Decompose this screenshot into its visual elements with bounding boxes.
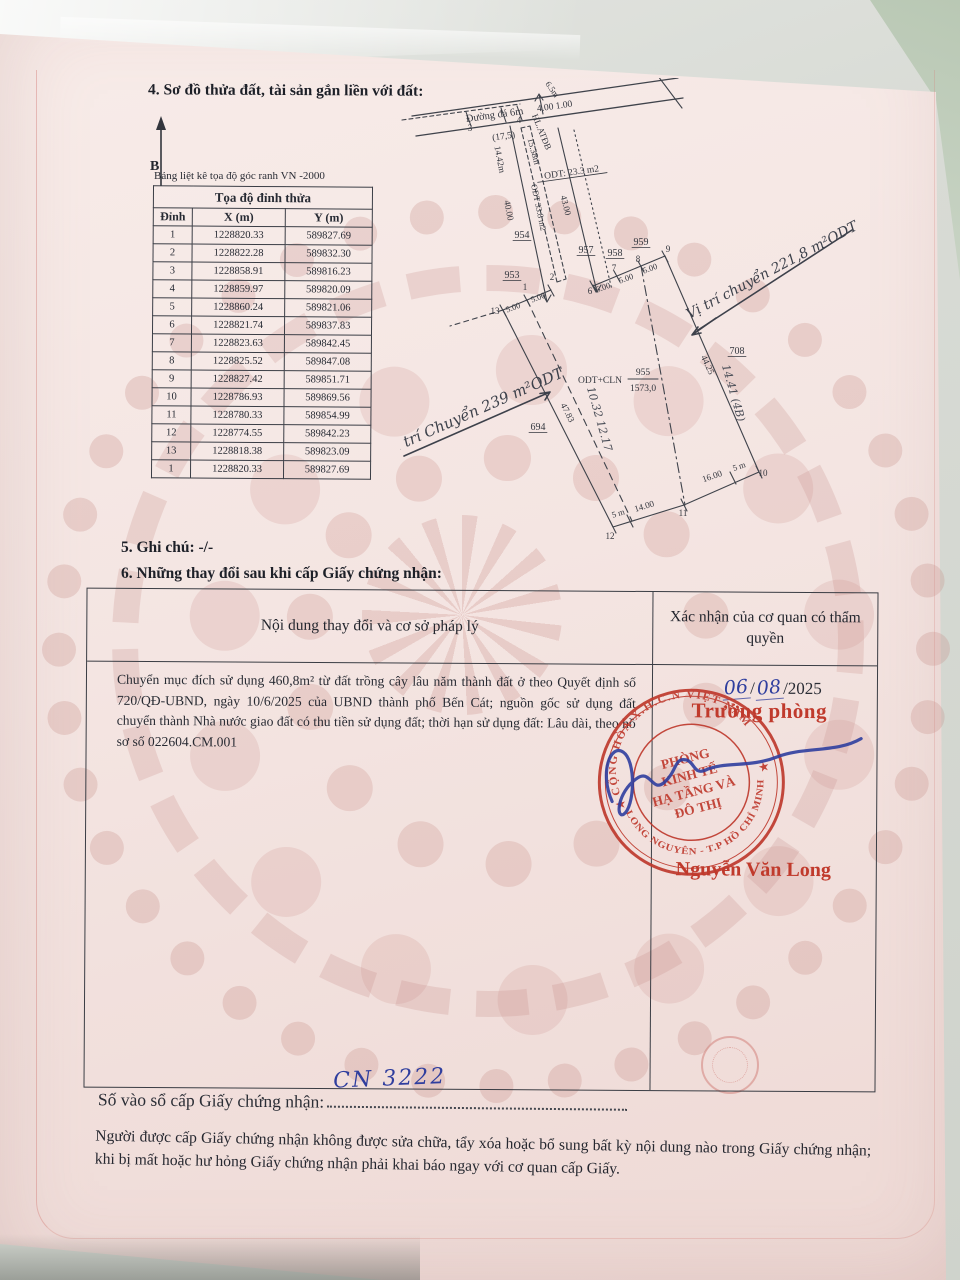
diagram-label: (17,5)	[492, 129, 516, 143]
coord-row: 11228820.33589827.69	[153, 226, 372, 246]
changes-table: Nội dung thay đổi và cơ sở pháp lý Xác n…	[83, 588, 878, 1093]
coord-row: 91228827.42589851.71	[152, 370, 371, 390]
diagram-label: 958	[608, 248, 623, 259]
diagram-label: 694	[531, 422, 546, 433]
coord-row: 51228860.24589821.06	[153, 298, 372, 318]
coord-row: 81228825.52589847.08	[152, 352, 371, 372]
diagram-label: 14.42m	[492, 145, 507, 174]
coordinate-table: Tọa độ đỉnh thửa Đỉnh X (m) Y (m) 112288…	[151, 185, 373, 480]
diagram-label: 5.00	[617, 271, 634, 286]
coord-row: 41228859.97589820.09	[153, 280, 372, 300]
coord-row: 11228820.33589827.69	[151, 460, 370, 480]
diagram-label: 6	[588, 286, 593, 296]
coord-row: 131228818.38589823.09	[152, 442, 371, 462]
diagram-label: Vị trí Chuyển 239 m²ODT	[400, 363, 567, 459]
diagram-label: 10	[759, 468, 769, 478]
diagram-label: 14.00	[633, 498, 656, 514]
serial-row: Số vào sổ cấp Giấy chứng nhận:CN 3222	[98, 1085, 627, 1116]
coord-col-y: Y (m)	[285, 209, 372, 228]
date-year: /2025	[783, 679, 822, 698]
diagram-label: 7	[612, 263, 617, 273]
coord-row: 61228821.74589837.83	[152, 316, 371, 336]
diagram-label: 8	[636, 254, 641, 264]
diagram-label: 9	[666, 244, 671, 254]
diagram-label: 3	[468, 123, 473, 133]
diagram-label: 1573,0	[630, 384, 656, 394]
coord-table-title: Tọa độ đỉnh thửa	[153, 186, 372, 210]
serial-label: Số vào sổ cấp Giấy chứng nhận:	[98, 1089, 324, 1111]
diagram-label: 14.41 (4B)	[719, 363, 748, 423]
diagram-label: 5.00	[504, 300, 521, 315]
diagram-label: 47.83	[559, 401, 577, 424]
certificate-content: 4. Sơ đồ thửa đất, tài sản gắn liền với …	[0, 0, 960, 1280]
coord-table-caption: Bảng liệt kê tọa độ góc ranh VN -2000	[154, 170, 325, 182]
diagram-label: 955	[636, 368, 651, 378]
parcel-diagram: Đường đá 6m4.00 1.0034(17,5)HL.ATĐB6.5m1…	[400, 78, 960, 548]
diagram-label: 957	[579, 245, 594, 256]
diagram-label: 15.38m	[526, 137, 543, 166]
serial-number-handwritten: CN 3222	[333, 1064, 447, 1094]
diagram-label: Vị trí chuyển 221,8 m²ODT	[683, 216, 862, 323]
coord-table-header-row: Đỉnh X (m) Y (m)	[153, 208, 372, 228]
approver-name: Nguyễn Văn Long	[651, 858, 856, 882]
diagram-label: 5 m	[610, 506, 626, 519]
coord-row: 111228780.33589854.99	[152, 406, 371, 426]
diagram-label: 44.25	[699, 353, 717, 376]
diagram-label: 43.00	[559, 194, 574, 217]
changes-col1-header: Nội dung thay đổi và cơ sở pháp lý	[87, 589, 653, 664]
diagram-label: 953	[505, 270, 520, 281]
diagram-label: 2	[550, 272, 555, 282]
coord-row: 101228786.93589869.56	[152, 388, 371, 408]
coord-col-x: X (m)	[192, 208, 285, 227]
diagram-label: 4.00 1.00	[536, 100, 573, 115]
coord-row: 21228822.28589832.30	[153, 244, 372, 264]
diagram-label: 11	[679, 508, 688, 518]
diagram-label: ODT 33.8 m2	[529, 183, 549, 231]
serial-dotted-line: CN 3222	[327, 1088, 627, 1111]
coord-row: 121228774.55589842.23	[152, 424, 371, 444]
coord-col-vertex: Đỉnh	[153, 208, 192, 226]
diagram-label: 4	[517, 115, 522, 125]
diagram-label: 954	[515, 230, 530, 241]
section4-title: 4. Sơ đồ thửa đất, tài sản gắn liền với …	[148, 81, 423, 100]
diagram-label: ODT: 23.3 m2	[544, 164, 600, 182]
diagram-label: 1	[523, 282, 528, 292]
diagram-label: 13	[491, 306, 501, 316]
coord-row: 71228823.63589842.45	[152, 334, 371, 354]
diagram-label: 10.32 12.17	[584, 385, 615, 452]
diagram-label: 40.00	[502, 200, 516, 222]
diagram-label: 5.00	[594, 280, 611, 295]
footer-notice: Người được cấp Giấy chứng nhận không đượ…	[95, 1125, 872, 1187]
coord-table-body: 11228820.33589827.6921228822.28589832.30…	[151, 226, 372, 480]
section5-title: 5. Ghi chú: -/-	[121, 539, 213, 557]
diagram-label: 16.00	[701, 468, 724, 484]
diagram-label: 5 m	[731, 459, 747, 473]
coord-row: 31228858.91589816.23	[153, 262, 372, 282]
diagram-label: ODT+CLN	[578, 376, 622, 386]
diagram-label: 12	[606, 531, 615, 541]
diagram-label: 708	[730, 346, 745, 357]
diagram-label: 959	[634, 237, 649, 248]
diagram-label: 5.00	[529, 290, 546, 305]
section6-title: 6. Những thay đổi sau khi cấp Giấy chứng…	[121, 565, 442, 583]
diagram-label: 5.00	[641, 261, 658, 276]
